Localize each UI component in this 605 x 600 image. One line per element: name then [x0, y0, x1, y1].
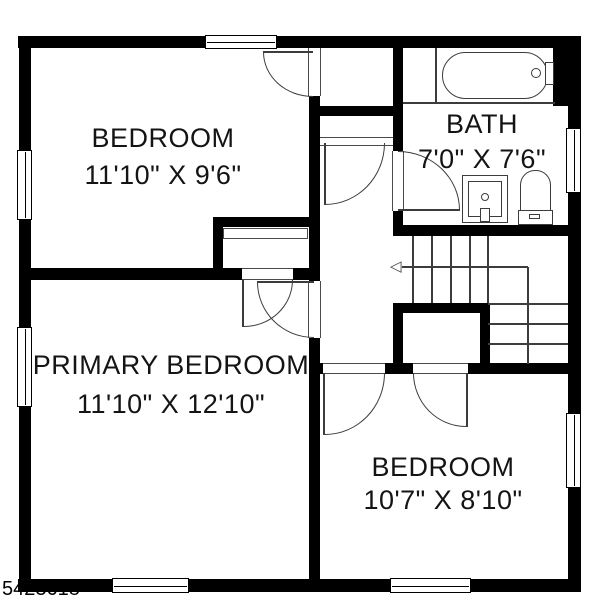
- window-right-bedroom: [566, 413, 581, 488]
- stair-tread: [469, 236, 471, 303]
- stair-direction-arrow-icon: ◁: [390, 259, 402, 274]
- stair-tread: [487, 236, 489, 303]
- stair-tread: [431, 236, 433, 303]
- wall-top-left: [18, 36, 205, 48]
- wall-tub-right-block: [553, 48, 568, 106]
- room-label-bath: BATH: [397, 110, 567, 138]
- wall-bedroom2-top-c: [468, 363, 581, 374]
- wall-closet-divider: [313, 106, 403, 116]
- wall-primary-closet-top: [213, 217, 309, 227]
- window-right-bath: [566, 128, 581, 193]
- wall-bath-bottom: [393, 225, 581, 236]
- tub-faucet-knob-icon: [531, 68, 541, 78]
- door-arc-hall-closet: [325, 143, 385, 205]
- stair-direction-line: [402, 266, 528, 268]
- room-dims-bedroom2: 10'7" X 8'10": [328, 486, 558, 514]
- room-label-primary-bedroom: PRIMARY BEDROOM: [28, 351, 314, 379]
- toilet-bowl-icon: [520, 170, 551, 212]
- door-arc-bedroom1: [263, 52, 313, 97]
- wall-left-middle: [19, 220, 31, 327]
- tub-enclosure-line-v: [435, 48, 437, 103]
- room-label-bedroom1: BEDROOM: [38, 124, 288, 152]
- window-left-upper: [17, 150, 32, 220]
- window-pane-line: [207, 42, 275, 43]
- window-bottom-left: [112, 578, 189, 593]
- wall-primary-closet-left: [213, 217, 223, 280]
- wall-right-upper: [568, 36, 581, 128]
- wall-hall-west-upper: [309, 96, 320, 281]
- room-label-bedroom2: BEDROOM: [328, 453, 558, 481]
- wall-left-upper: [19, 36, 31, 150]
- window-pane-line: [574, 130, 575, 191]
- closet-shelf: [223, 228, 308, 239]
- door-arc-bedroom2-entry: [325, 373, 385, 435]
- wall-left-lower: [19, 407, 31, 592]
- room-dims-bedroom1: 11'10" X 9'6": [38, 161, 288, 189]
- window-pane-line: [574, 415, 575, 486]
- window-bottom-right: [390, 578, 471, 593]
- floor-plan: ◁ BEDROOM 11'10" X 9'6" BATH 7'0" X 7'6"…: [0, 0, 605, 600]
- wall-bottom-middle: [189, 579, 390, 592]
- wall-top-right: [277, 36, 581, 48]
- window-pane-line: [25, 152, 26, 218]
- opening-primary-closet: [242, 268, 293, 280]
- wall-right-lower: [568, 488, 581, 592]
- door-leaf-bedroom2-closet: [466, 373, 468, 427]
- tub-enclosure-line-h: [403, 102, 555, 104]
- sink-drain-icon: [481, 193, 489, 201]
- window-pane-line: [25, 329, 26, 405]
- room-dims-bath: 7'0" X 7'6": [397, 145, 567, 173]
- wall-bottom-right: [471, 579, 581, 592]
- window-pane-line: [392, 586, 469, 587]
- door-arc-bedroom2-closet: [413, 373, 466, 427]
- room-dims-primary-bedroom: 11'10" X 12'10": [28, 390, 314, 418]
- stair-tread: [412, 236, 414, 303]
- window-top: [205, 35, 277, 49]
- wall-divider-left: [31, 268, 242, 280]
- wall-bedroom2-top-b: [385, 363, 413, 374]
- window-pane-line: [114, 586, 187, 587]
- listing-number: 5423618: [2, 579, 80, 600]
- tub-faucet-icon: [545, 62, 554, 85]
- wall-stair-bar: [393, 303, 488, 313]
- sink-faucet-icon: [480, 208, 490, 222]
- toilet-flush-icon: [529, 214, 540, 219]
- stair-winder-divider: [527, 267, 529, 364]
- stair-tread: [450, 236, 452, 303]
